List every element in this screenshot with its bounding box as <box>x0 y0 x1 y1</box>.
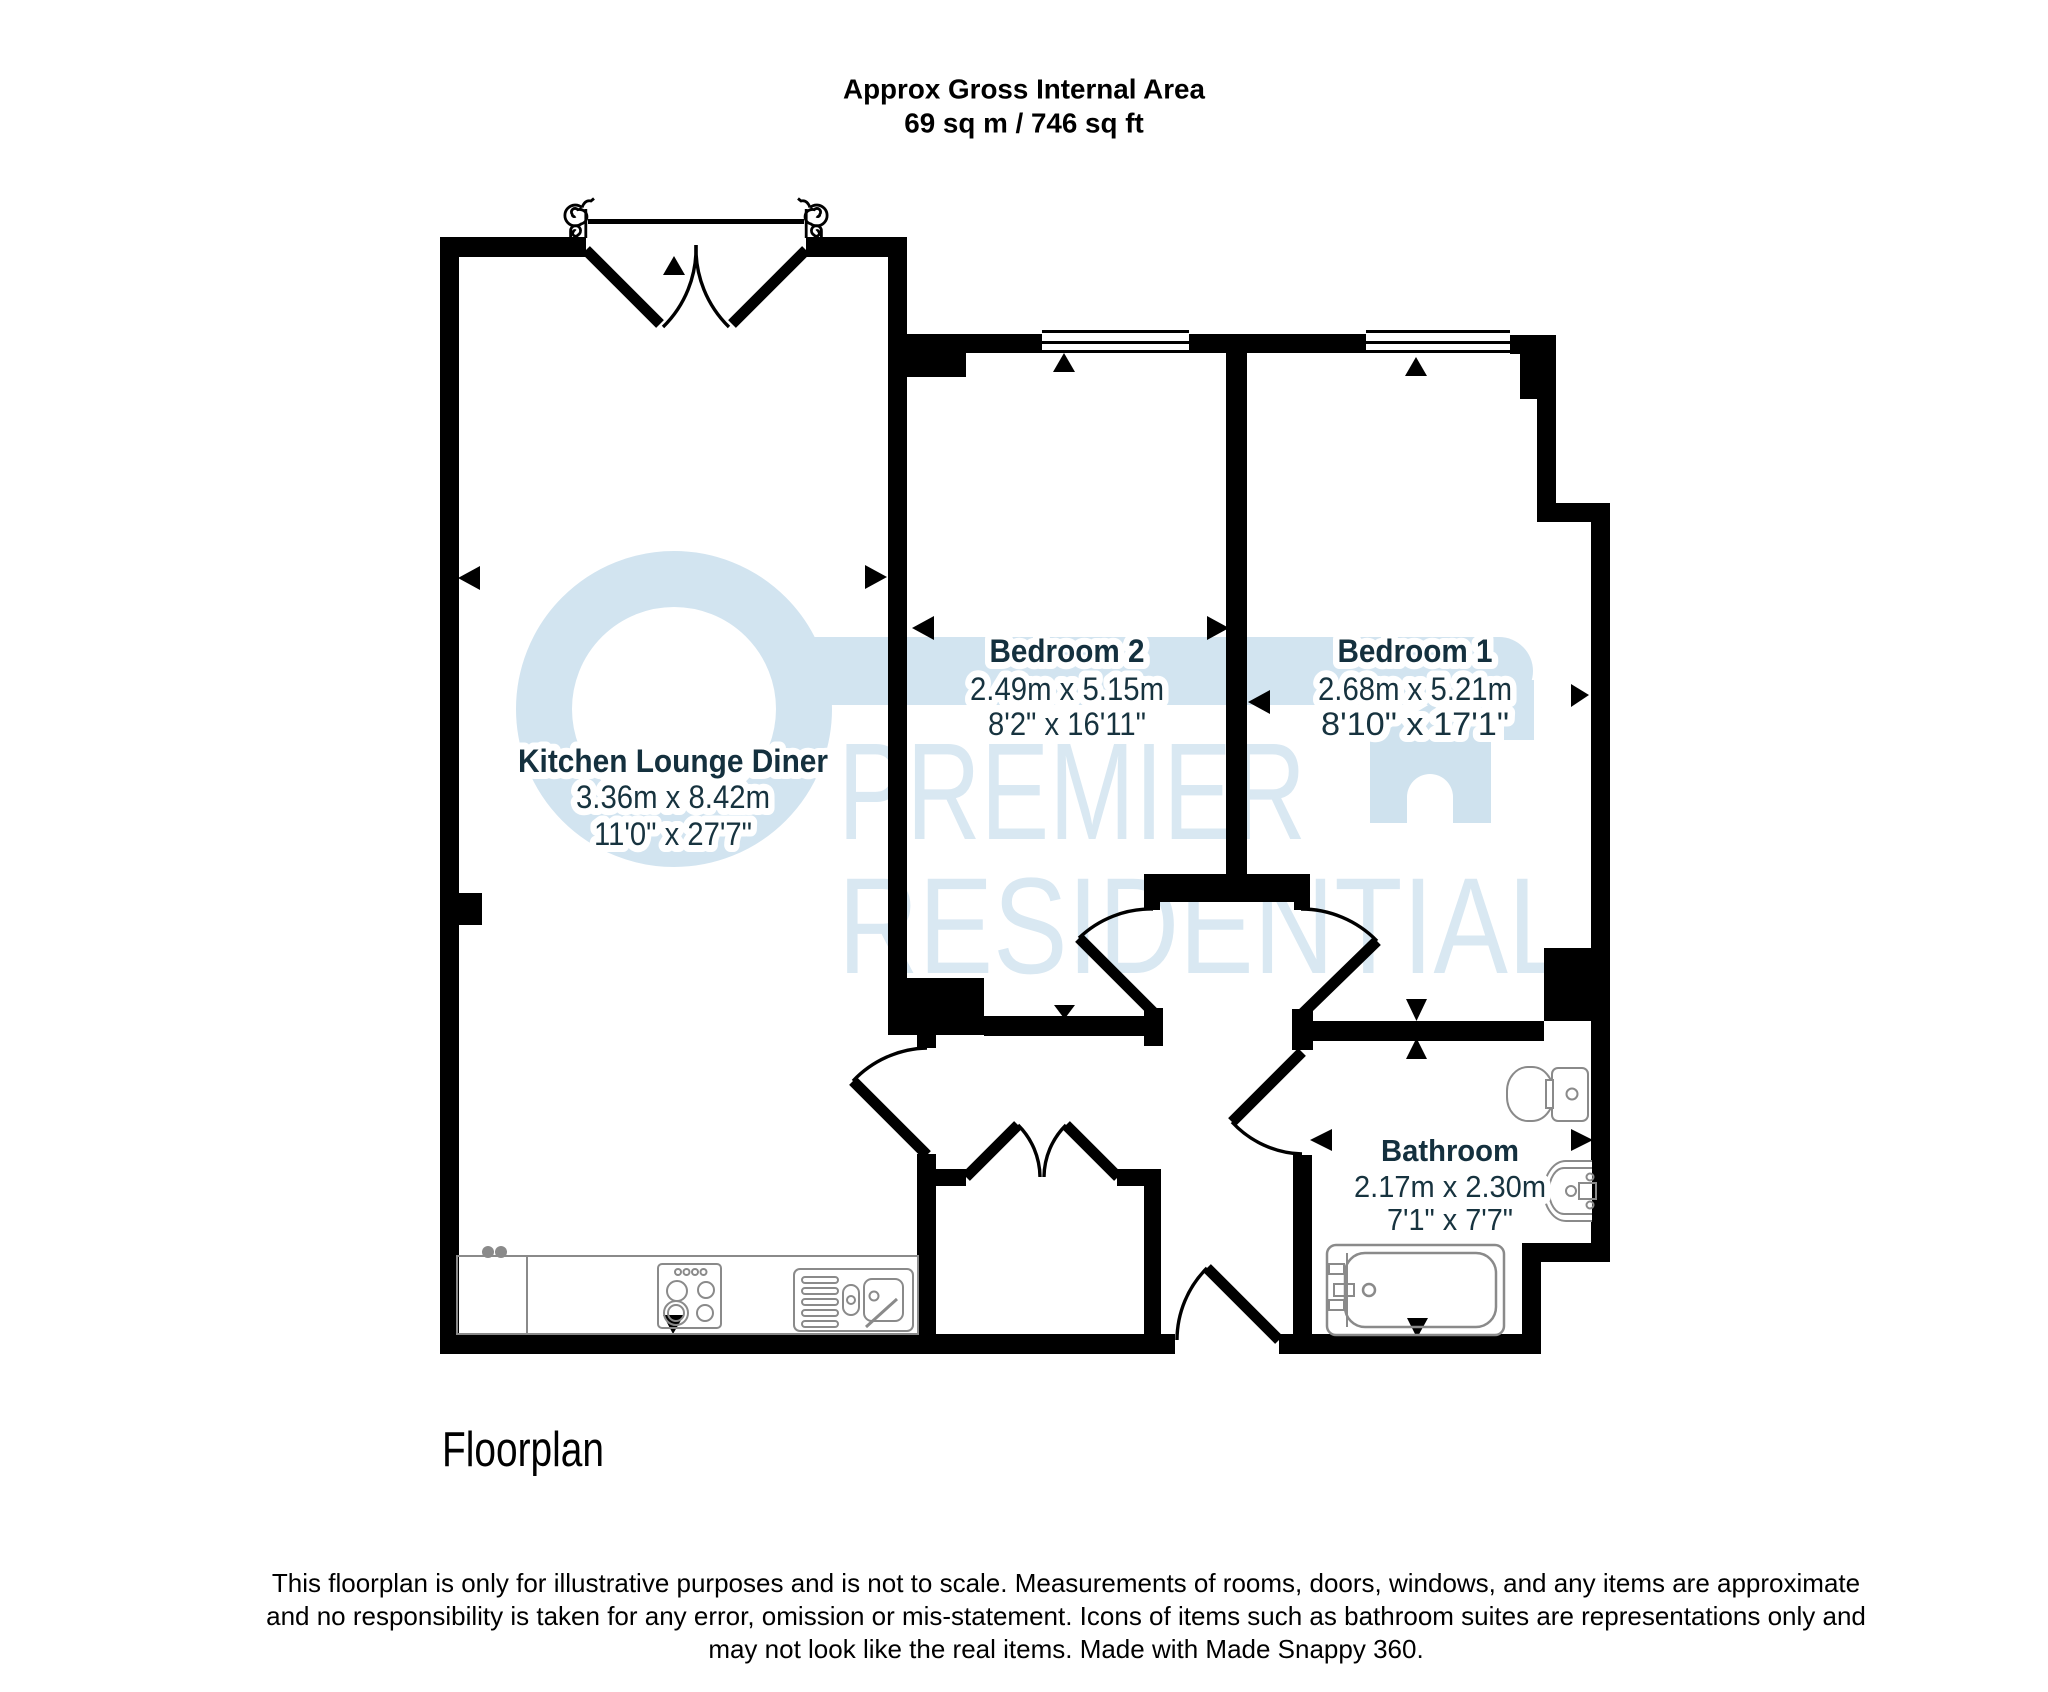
svg-text:11'0" x 27'7": 11'0" x 27'7" <box>594 816 752 852</box>
svg-text:This floorplan is only for ill: This floorplan is only for illustrative … <box>272 1568 1860 1598</box>
svg-text:3.36m x 8.42m: 3.36m x 8.42m <box>576 779 770 815</box>
svg-text:7'1" x 7'7": 7'1" x 7'7" <box>1387 1202 1513 1237</box>
svg-text:Bedroom 1: Bedroom 1 <box>1338 633 1493 669</box>
svg-text:8'10" x 17'1": 8'10" x 17'1" <box>1321 706 1509 742</box>
svg-text:Bathroom: Bathroom <box>1381 1133 1519 1168</box>
svg-text:2.17m x 2.30m: 2.17m x 2.30m <box>1354 1169 1546 1204</box>
svg-text:Floorplan: Floorplan <box>442 1423 604 1477</box>
svg-text:2.49m x 5.15m: 2.49m x 5.15m <box>970 671 1164 707</box>
svg-text:may not look like the real ite: may not look like the real items. Made w… <box>708 1634 1423 1664</box>
svg-text:Approx Gross Internal Area: Approx Gross Internal Area <box>843 74 1206 105</box>
svg-text:69 sq m / 746 sq ft: 69 sq m / 746 sq ft <box>904 108 1143 139</box>
svg-text:2.68m x 5.21m: 2.68m x 5.21m <box>1318 671 1512 707</box>
svg-text:Bedroom 2: Bedroom 2 <box>990 633 1145 669</box>
svg-text:8'2" x 16'11": 8'2" x 16'11" <box>988 706 1146 742</box>
svg-text:Kitchen Lounge Diner: Kitchen Lounge Diner <box>518 743 828 779</box>
svg-text:and no responsibility is taken: and no responsibility is taken for any e… <box>266 1601 1866 1631</box>
